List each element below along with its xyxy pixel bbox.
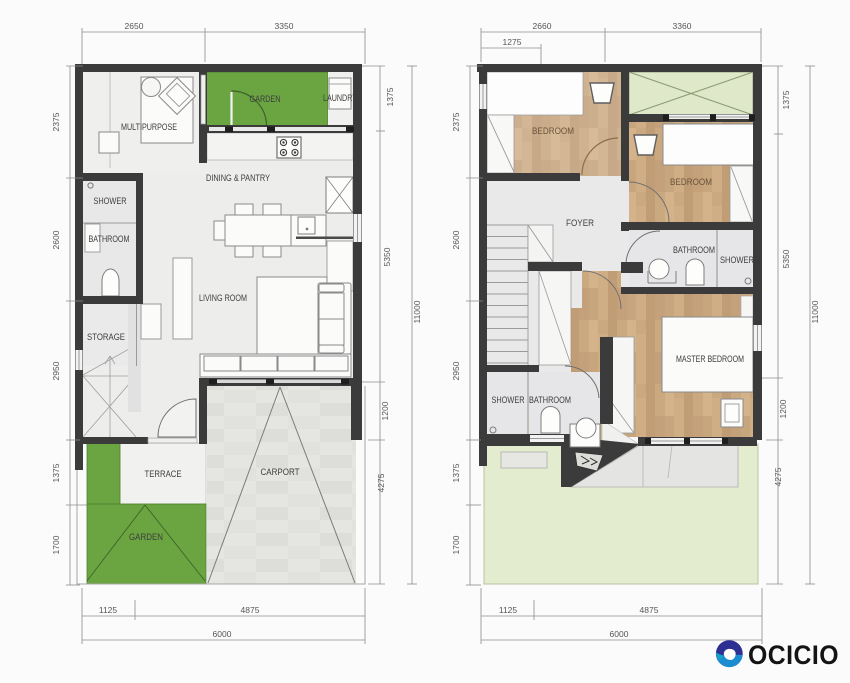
svg-text:BEDROOM: BEDROOM xyxy=(532,126,574,136)
svg-text:DINING & PANTRY: DINING & PANTRY xyxy=(206,173,270,183)
svg-text:CARPORT: CARPORT xyxy=(261,467,300,477)
svg-text:11000: 11000 xyxy=(412,300,422,323)
svg-text:5350: 5350 xyxy=(781,249,791,268)
svg-text:1200: 1200 xyxy=(380,401,390,420)
svg-text:1375: 1375 xyxy=(781,90,791,109)
svg-text:LIVING ROOM: LIVING ROOM xyxy=(199,293,247,303)
svg-text:4875: 4875 xyxy=(241,605,260,615)
svg-text:1375: 1375 xyxy=(51,463,61,482)
svg-text:2950: 2950 xyxy=(51,361,61,380)
svg-text:SHOWER: SHOWER xyxy=(492,395,525,405)
svg-text:1700: 1700 xyxy=(51,535,61,554)
svg-text:3360: 3360 xyxy=(673,21,692,31)
svg-text:2600: 2600 xyxy=(451,230,461,249)
svg-text:BATHROOM: BATHROOM xyxy=(673,245,715,255)
svg-text:FOYER: FOYER xyxy=(566,218,594,228)
svg-text:2600: 2600 xyxy=(51,230,61,249)
svg-text:4275: 4275 xyxy=(376,473,386,492)
svg-text:4275: 4275 xyxy=(773,467,783,486)
svg-text:MULTIPURPOSE: MULTIPURPOSE xyxy=(121,122,177,132)
svg-text:MASTER BEDROOM: MASTER BEDROOM xyxy=(676,354,744,364)
svg-text:2375: 2375 xyxy=(51,112,61,131)
svg-text:1125: 1125 xyxy=(99,605,118,615)
svg-text:1375: 1375 xyxy=(451,463,461,482)
svg-text:SHOWER: SHOWER xyxy=(720,255,754,265)
svg-text:1125: 1125 xyxy=(499,605,518,615)
svg-text:1200: 1200 xyxy=(778,399,788,418)
svg-text:TERRACE: TERRACE xyxy=(145,469,182,479)
svg-text:2375: 2375 xyxy=(451,112,461,131)
svg-text:1700: 1700 xyxy=(451,535,461,554)
svg-text:GARDEN: GARDEN xyxy=(250,94,281,104)
svg-text:5350: 5350 xyxy=(382,247,392,266)
svg-text:1375: 1375 xyxy=(385,87,395,106)
svg-text:2660: 2660 xyxy=(533,21,552,31)
svg-text:3350: 3350 xyxy=(275,21,294,31)
svg-text:BATHROOM: BATHROOM xyxy=(529,395,571,405)
svg-text:SHOWER: SHOWER xyxy=(94,196,127,206)
svg-text:LAUNDRY: LAUNDRY xyxy=(323,93,357,103)
svg-text:1275: 1275 xyxy=(503,37,522,47)
svg-text:6000: 6000 xyxy=(610,629,629,639)
svg-text:11000: 11000 xyxy=(810,300,820,323)
svg-text:4875: 4875 xyxy=(640,605,659,615)
svg-text:2950: 2950 xyxy=(451,361,461,380)
svg-text:6000: 6000 xyxy=(213,629,232,639)
svg-text:OCICIO: OCICIO xyxy=(748,640,839,670)
svg-text:GARDEN: GARDEN xyxy=(129,532,163,542)
svg-text:BEDROOM: BEDROOM xyxy=(670,177,712,187)
svg-text:STORAGE: STORAGE xyxy=(87,332,125,342)
svg-text:BATHROOM: BATHROOM xyxy=(89,234,130,244)
svg-text:2650: 2650 xyxy=(125,21,144,31)
